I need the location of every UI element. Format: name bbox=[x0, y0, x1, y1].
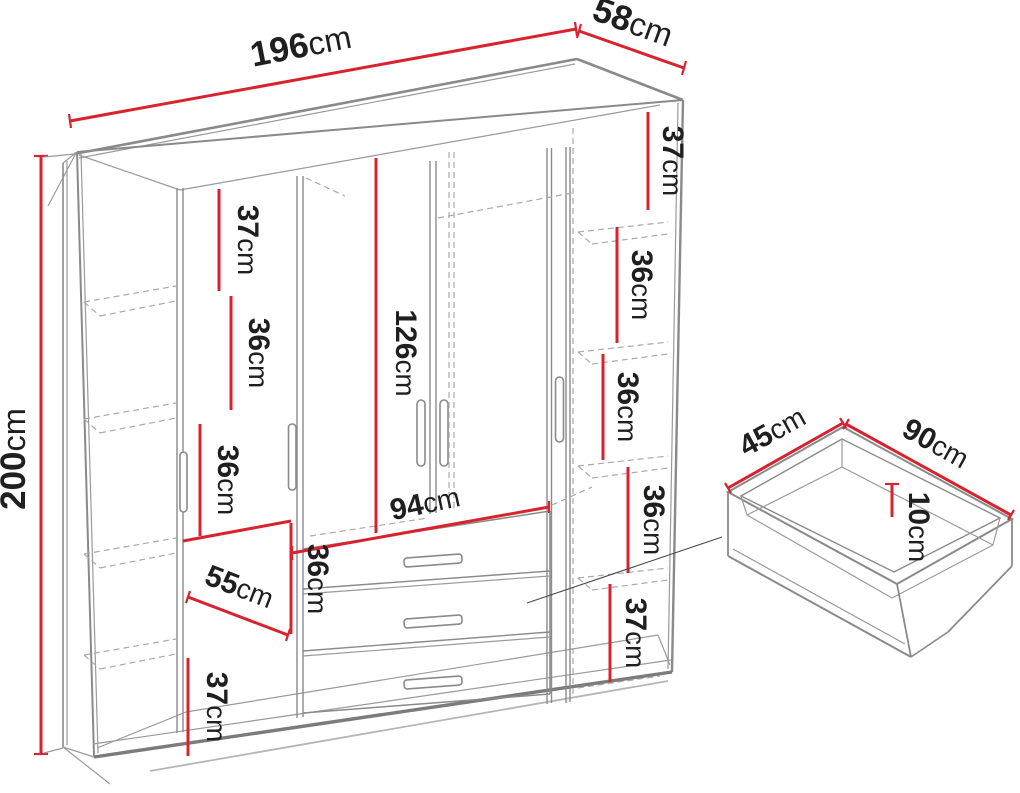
label-left-shelf-2: 36cm bbox=[242, 318, 275, 389]
wardrobe-top-face bbox=[48, 59, 683, 206]
label-depth: 58cm bbox=[588, 0, 679, 55]
label-right-shelf-1: 37cm bbox=[656, 126, 689, 197]
label-left-shelf-5: 36cm bbox=[301, 544, 334, 615]
door-handle bbox=[289, 424, 297, 490]
wardrobe-drawing bbox=[48, 59, 683, 784]
drawer-handle bbox=[404, 615, 463, 628]
door-handle bbox=[440, 400, 448, 466]
door-handle bbox=[417, 400, 425, 466]
label-left-shelf-3: 36cm bbox=[211, 445, 244, 516]
floor-line bbox=[63, 747, 110, 784]
drawer-handle bbox=[404, 554, 463, 567]
drawer-handle bbox=[404, 676, 463, 689]
dim-line-height bbox=[34, 154, 74, 754]
label-center-height-126: 126cm bbox=[389, 309, 422, 396]
label-left-shelf-6: 37cm bbox=[200, 672, 233, 743]
label-drawer-height-10: 10cm bbox=[902, 492, 935, 563]
label-width: 196cm bbox=[247, 17, 354, 75]
label-right-shelf-3: 36cm bbox=[611, 372, 644, 443]
door-handle bbox=[556, 377, 564, 442]
label-right-shelf-4: 36cm bbox=[637, 485, 670, 556]
label-left-shelf-1: 37cm bbox=[231, 205, 264, 276]
door-handle bbox=[180, 452, 187, 512]
wardrobe-front-frame bbox=[77, 100, 683, 771]
leader-line bbox=[527, 537, 722, 603]
diagram-canvas: 196cm 58cm 200cm 37cm 36cm 36cm 55cm 36c… bbox=[0, 0, 1020, 793]
label-center-width-94: 94cm bbox=[387, 480, 463, 527]
label-height: 200cm bbox=[0, 408, 33, 510]
furniture-dimension-diagram: 196cm 58cm 200cm 37cm 36cm 36cm 55cm 36c… bbox=[0, 0, 1020, 793]
label-right-shelf-2: 36cm bbox=[625, 250, 658, 321]
left-back-edge bbox=[48, 155, 75, 206]
label-right-shelf-5: 37cm bbox=[619, 598, 652, 669]
